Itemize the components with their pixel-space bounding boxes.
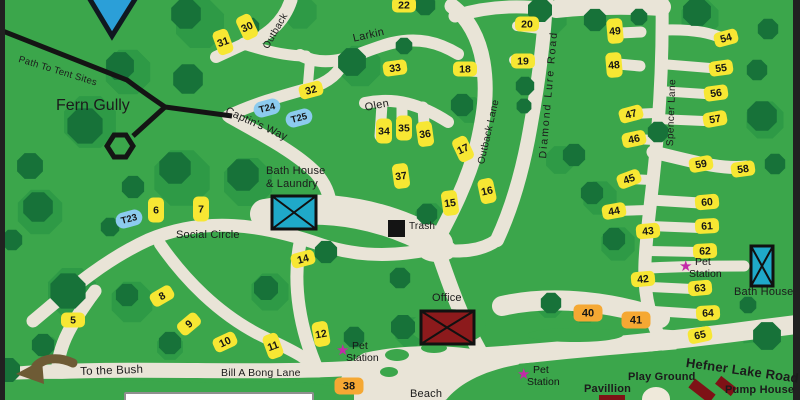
site-marker-18: 18 bbox=[453, 62, 477, 77]
label-to-the-bush: To the Bush bbox=[80, 364, 143, 378]
label-fern-gully: Fern Gully bbox=[56, 98, 130, 115]
site-marker-34: 34 bbox=[376, 119, 392, 144]
site-marker-49: 49 bbox=[606, 18, 624, 44]
label-play-ground: Play Ground bbox=[628, 372, 696, 384]
trash-marker bbox=[388, 220, 405, 237]
tree bbox=[758, 19, 778, 39]
tree bbox=[747, 101, 777, 131]
tree bbox=[396, 38, 413, 55]
label-trash: Trash bbox=[409, 222, 435, 233]
site-marker-37: 37 bbox=[391, 163, 410, 190]
site-marker-6: 6 bbox=[148, 198, 164, 223]
tree bbox=[50, 273, 85, 308]
pet-station-label-line2: Station bbox=[689, 268, 722, 280]
tree bbox=[116, 284, 138, 306]
map-edge-right bbox=[793, 0, 800, 400]
tree bbox=[584, 9, 606, 31]
tree bbox=[517, 99, 532, 114]
site-marker-63: 63 bbox=[687, 279, 712, 296]
tree bbox=[563, 144, 585, 166]
tree bbox=[23, 192, 53, 222]
tree bbox=[254, 276, 278, 300]
pet-station-star-icon: ★ bbox=[517, 367, 530, 382]
label-social-circle: Social Circle bbox=[176, 230, 240, 242]
tree bbox=[451, 94, 473, 116]
pavillion-building bbox=[599, 395, 625, 400]
site-marker-15: 15 bbox=[440, 190, 459, 217]
site-marker-43: 43 bbox=[635, 222, 660, 239]
campground-map: 5678910111214151617181920223031323334353… bbox=[0, 0, 800, 400]
bath-house-laundry-building bbox=[272, 196, 316, 229]
site-marker-60: 60 bbox=[694, 193, 719, 210]
pet-station-label-line1: Pet bbox=[533, 364, 560, 376]
site-marker-41: 41 bbox=[622, 312, 651, 329]
tree bbox=[603, 228, 625, 250]
label-office: Office bbox=[432, 293, 462, 305]
pet-station-label-line1: Pet bbox=[695, 256, 722, 268]
bath-house-building bbox=[751, 246, 773, 286]
label-pump-house: Pump House bbox=[725, 385, 794, 397]
tree bbox=[740, 297, 757, 314]
tree bbox=[541, 293, 561, 313]
tree bbox=[171, 0, 201, 29]
site-marker-7: 7 bbox=[193, 197, 209, 222]
road-captins-north bbox=[228, 60, 344, 116]
tree bbox=[391, 315, 415, 339]
pet-station-spencer: ★PetStation bbox=[681, 256, 722, 281]
tree bbox=[315, 241, 337, 263]
tree bbox=[581, 182, 603, 204]
site-marker-20: 20 bbox=[515, 17, 539, 32]
site-marker-22: 22 bbox=[392, 0, 416, 13]
tree bbox=[17, 153, 43, 179]
label-bath-house-right: Bath House bbox=[734, 287, 793, 299]
tree bbox=[173, 64, 203, 94]
label-beach: Beach bbox=[410, 389, 442, 400]
tree bbox=[122, 176, 144, 198]
map-edge-left bbox=[0, 0, 5, 400]
pet-station-star-icon: ★ bbox=[679, 259, 692, 274]
legend-box bbox=[124, 392, 314, 400]
pet-station-center: ★PetStation bbox=[338, 340, 379, 365]
pet-station-label-line1: Pet bbox=[352, 340, 379, 352]
trail-junction-hexagon bbox=[107, 135, 133, 157]
site-marker-64: 64 bbox=[696, 305, 721, 321]
label-bath-house-laundry-line1: Bath House bbox=[266, 166, 325, 178]
tree bbox=[159, 152, 190, 183]
pet-station-beach: ★PetStation bbox=[519, 364, 560, 389]
tree bbox=[227, 159, 258, 190]
tree bbox=[753, 322, 781, 350]
pet-station-star-icon: ★ bbox=[336, 343, 349, 358]
site-marker-40: 40 bbox=[574, 305, 603, 322]
site-marker-38: 38 bbox=[335, 378, 364, 395]
tree bbox=[338, 48, 366, 76]
site-marker-36: 36 bbox=[415, 121, 434, 148]
tree bbox=[159, 332, 181, 354]
site-marker-48: 48 bbox=[605, 52, 623, 78]
tree bbox=[765, 154, 785, 174]
site-marker-35: 35 bbox=[396, 116, 412, 141]
site-marker-42: 42 bbox=[630, 270, 655, 287]
tree bbox=[32, 334, 54, 356]
road-diamond-lure bbox=[497, 0, 546, 240]
site-marker-61: 61 bbox=[695, 218, 720, 234]
tree bbox=[747, 60, 767, 80]
tree bbox=[516, 77, 534, 95]
site-marker-19: 19 bbox=[511, 54, 535, 69]
road-junction bbox=[417, 238, 457, 262]
tree bbox=[631, 9, 648, 26]
tree bbox=[390, 268, 410, 288]
label-bath-house-laundry-line2: & Laundry bbox=[266, 179, 318, 191]
pet-station-label-line2: Station bbox=[527, 376, 560, 388]
water-triangle-marker bbox=[88, 0, 137, 36]
road-spencer-lane bbox=[645, 0, 670, 349]
label-pavillion: Pavillion bbox=[584, 384, 631, 396]
label-bill-a-bong-lane: Bill A Bong Lane bbox=[221, 368, 301, 379]
site-marker-5: 5 bbox=[61, 313, 85, 328]
office-building bbox=[421, 311, 474, 344]
pet-station-label-line2: Station bbox=[346, 352, 379, 364]
tree bbox=[415, 0, 435, 15]
